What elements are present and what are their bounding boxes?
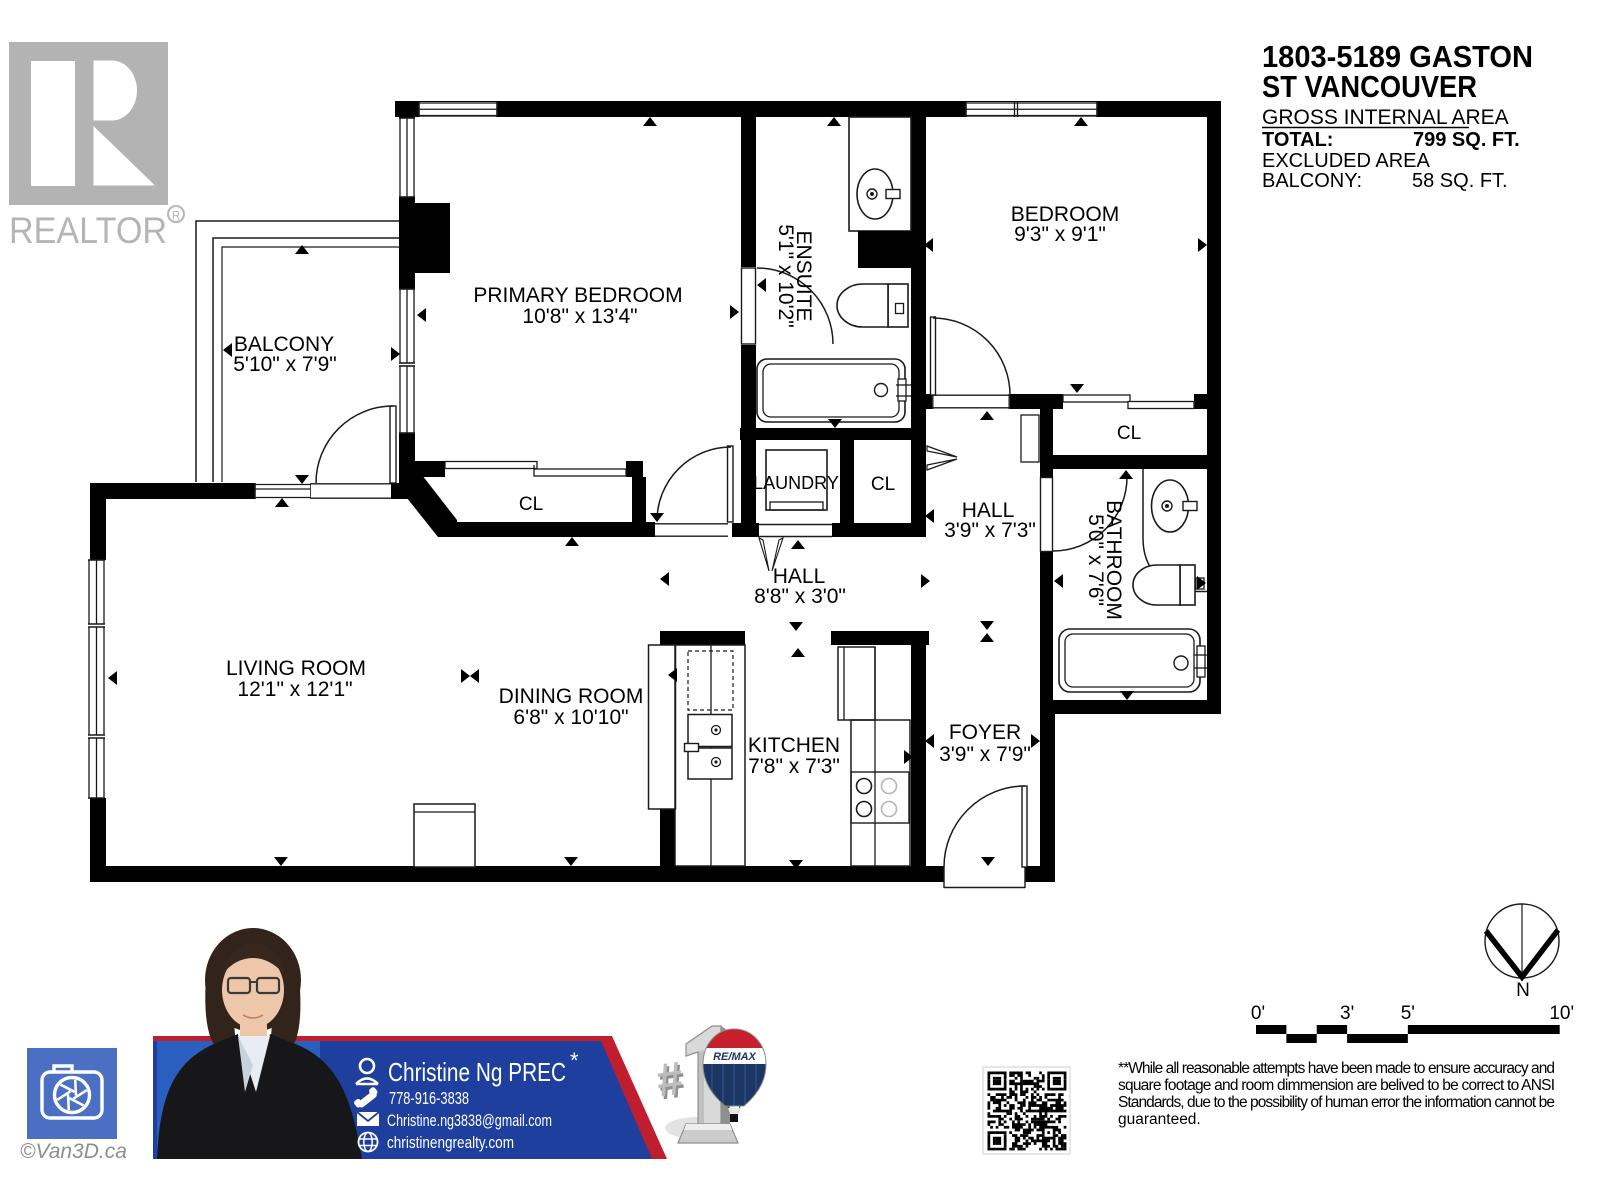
svg-text:LIVING ROOM: LIVING ROOM	[226, 657, 366, 680]
svg-text:EXCLUDED AREA: EXCLUDED AREA	[1262, 150, 1430, 172]
svg-text:©Van3D.ca: ©Van3D.ca	[20, 1140, 127, 1163]
svg-text:10': 10'	[1549, 1003, 1574, 1024]
svg-text:10'8" x 13'4": 10'8" x 13'4"	[522, 305, 637, 328]
svg-text:FOYER: FOYER	[949, 721, 1021, 744]
svg-text:778-916-3838: 778-916-3838	[389, 1088, 469, 1108]
svg-text:TOTAL:: TOTAL:	[1262, 129, 1333, 151]
svg-text:12'1" x 12'1": 12'1" x 12'1"	[237, 678, 352, 701]
svg-text:3'9" x 7'9": 3'9" x 7'9"	[939, 743, 1031, 766]
svg-text:3': 3'	[1340, 1003, 1354, 1024]
svg-text:GROSS INTERNAL AREA: GROSS INTERNAL AREA	[1262, 106, 1509, 129]
svg-text:799 SQ. FT.: 799 SQ. FT.	[1413, 129, 1520, 151]
svg-text:Standards, due to the possibil: Standards, due to the possibility of hum…	[1118, 1094, 1555, 1111]
svg-text:3'9" x 7'3": 3'9" x 7'3"	[944, 519, 1036, 542]
svg-text:Christine Ng PREC: Christine Ng PREC	[388, 1057, 566, 1087]
svg-text:N: N	[1516, 980, 1530, 1001]
svg-text:square footage and room dimmen: square footage and room dimmension are b…	[1118, 1077, 1555, 1094]
svg-text:KITCHEN: KITCHEN	[748, 734, 840, 757]
svg-text:6'8" x 10'10": 6'8" x 10'10"	[513, 706, 628, 729]
svg-text:*: *	[570, 1048, 579, 1073]
svg-text:LAUNDRY: LAUNDRY	[753, 473, 839, 493]
svg-text:CL: CL	[519, 494, 543, 515]
svg-text:CL: CL	[871, 474, 895, 495]
svg-text:R: R	[172, 211, 180, 223]
svg-text:ST VANCOUVER: ST VANCOUVER	[1262, 69, 1477, 104]
svg-text:5': 5'	[1401, 1003, 1415, 1024]
svg-text:Christine.ng3838@gmail.com: Christine.ng3838@gmail.com	[387, 1112, 552, 1130]
svg-text:guaranteed.: guaranteed.	[1118, 1111, 1201, 1128]
svg-text:christinengrealty.com: christinengrealty.com	[387, 1134, 514, 1152]
svg-text:5'0" x 7'6": 5'0" x 7'6"	[1084, 514, 1107, 606]
svg-text:0': 0'	[1251, 1003, 1265, 1024]
svg-text:RE/MAX: RE/MAX	[713, 1051, 756, 1063]
svg-text:5'10" x 7'9": 5'10" x 7'9"	[233, 353, 337, 376]
svg-text:BALCONY:: BALCONY:	[1262, 170, 1362, 192]
svg-text:58 SQ. FT.: 58 SQ. FT.	[1412, 170, 1508, 192]
svg-text:7'8" x 7'3": 7'8" x 7'3"	[748, 755, 840, 778]
svg-text:5'1" x 10'2": 5'1" x 10'2"	[774, 224, 797, 328]
svg-text:PRIMARY BEDROOM: PRIMARY BEDROOM	[473, 284, 682, 307]
svg-text:DINING ROOM: DINING ROOM	[499, 685, 644, 708]
svg-text:REALTOR: REALTOR	[9, 210, 167, 251]
svg-text:CL: CL	[1117, 423, 1141, 444]
svg-text:**While all reasonable attempt: **While all reasonable attempts have bee…	[1118, 1060, 1555, 1077]
svg-text:9'3" x 9'1": 9'3" x 9'1"	[1014, 223, 1106, 246]
svg-text:8'8" x 3'0": 8'8" x 3'0"	[754, 585, 846, 608]
